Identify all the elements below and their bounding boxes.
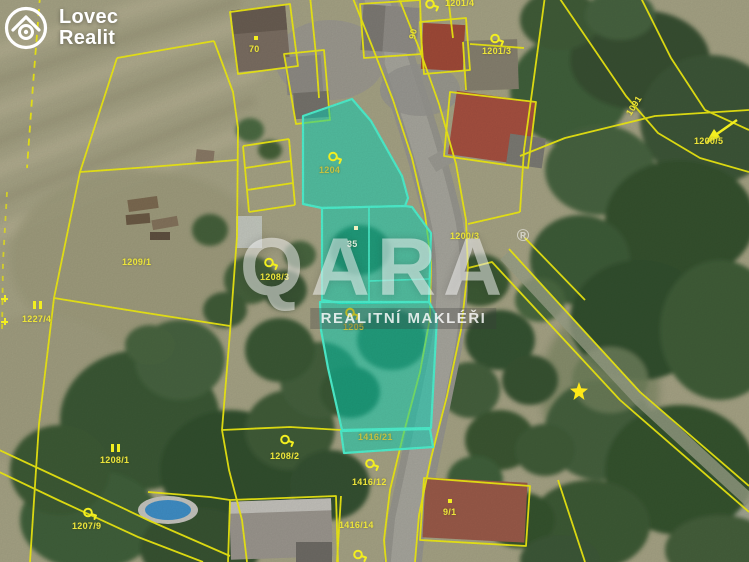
photo-grain-overlay	[0, 0, 749, 562]
cadastral-map-screenshot: 70 90 1201/4 1201/3 1200/3 1091 1200/5 1…	[0, 0, 749, 562]
aerial-cadastral-map[interactable]	[0, 0, 749, 562]
